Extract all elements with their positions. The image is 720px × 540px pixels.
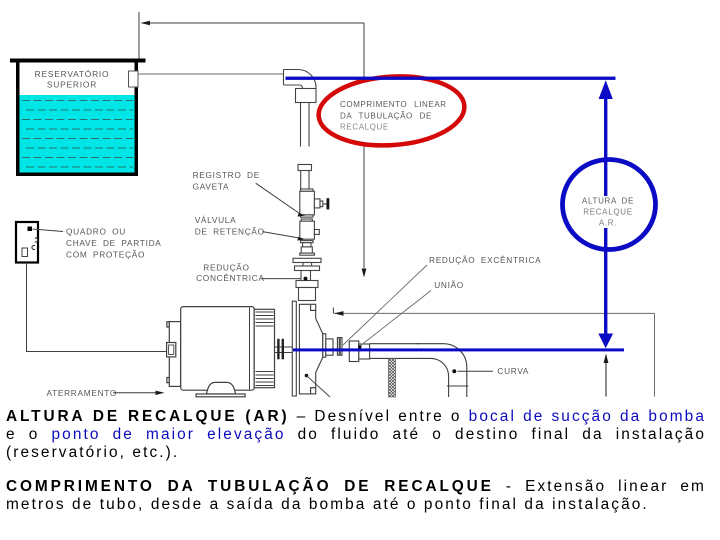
svg-text:REDUÇÃO EXCÊNTRICA: REDUÇÃO EXCÊNTRICA [429, 255, 541, 265]
svg-text:COM PROTEÇÃO: COM PROTEÇÃO [66, 250, 145, 260]
svg-text:COMPRIMENTO LINEAR: COMPRIMENTO LINEAR [340, 100, 447, 109]
svg-text:ALTURA DE: ALTURA DE [582, 197, 634, 206]
svg-text:DE RETENÇÃO: DE RETENÇÃO [195, 226, 265, 236]
svg-text:CURVA: CURVA [497, 366, 529, 376]
svg-text:UNIÃO: UNIÃO [434, 280, 464, 290]
svg-text:QUADRO OU: QUADRO OU [66, 227, 126, 237]
svg-text:A.R.: A.R. [599, 219, 617, 228]
svg-text:RESERVATÓRIO: RESERVATÓRIO [35, 69, 110, 79]
svg-text:GAVETA: GAVETA [193, 181, 230, 191]
svg-text:REDUÇÃO: REDUÇÃO [203, 263, 249, 273]
svg-text:VÁLVULA: VÁLVULA [195, 215, 237, 225]
svg-text:SUPERIOR: SUPERIOR [47, 80, 97, 90]
svg-text:CHAVE DE PARTIDA: CHAVE DE PARTIDA [66, 238, 162, 248]
svg-text:ATERRAMENTO: ATERRAMENTO [47, 388, 118, 398]
svg-text:DA TUBULAÇÃO DE: DA TUBULAÇÃO DE [340, 111, 432, 120]
svg-text:CONCÊNTRICA: CONCÊNTRICA [196, 273, 265, 283]
svg-text:RECALQUE: RECALQUE [340, 122, 389, 131]
svg-text:RECALQUE: RECALQUE [583, 208, 633, 217]
svg-text:REGISTRO DE: REGISTRO DE [193, 170, 260, 180]
